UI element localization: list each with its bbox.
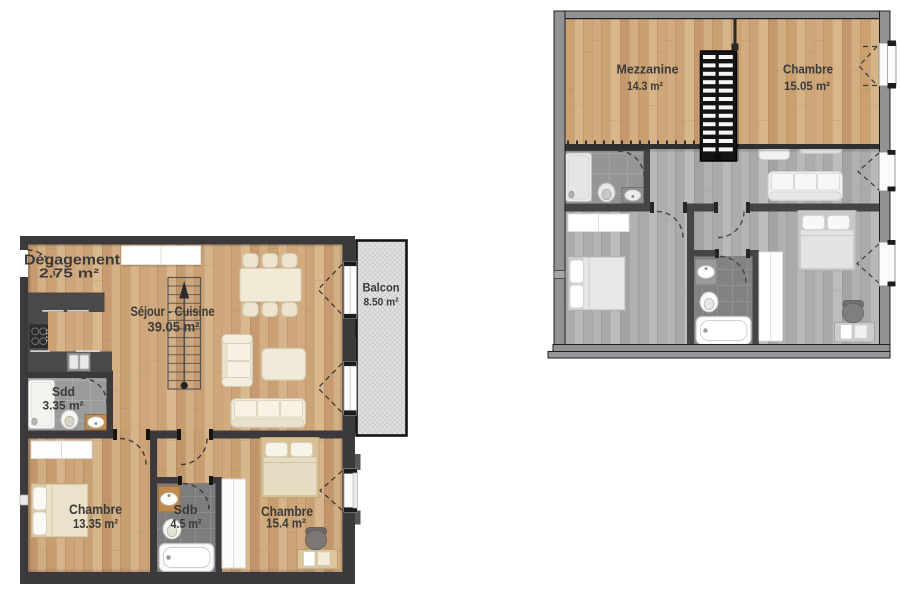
- svg-text:8.50 m²: 8.50 m²: [364, 297, 399, 309]
- svg-text:13.35 m²: 13.35 m²: [73, 517, 118, 531]
- svg-text:15.4 m²: 15.4 m²: [266, 517, 306, 531]
- svg-text:39.05 m²: 39.05 m²: [148, 320, 200, 335]
- svg-text:Chambre: Chambre: [783, 62, 833, 77]
- svg-text:15.05 m²: 15.05 m²: [784, 79, 830, 93]
- svg-text:Sdb: Sdb: [174, 503, 198, 517]
- svg-text:Sdd: Sdd: [52, 385, 75, 399]
- svg-text:2.75 m²: 2.75 m²: [39, 266, 100, 281]
- svg-text:Mezzanine: Mezzanine: [617, 62, 679, 77]
- svg-text:14.3 m²: 14.3 m²: [627, 79, 663, 93]
- svg-text:Balcon: Balcon: [363, 283, 400, 295]
- svg-text:Séjour - Cuisine: Séjour - Cuisine: [131, 303, 215, 319]
- svg-text:3.35 m²: 3.35 m²: [43, 399, 84, 413]
- svg-text:Chambre: Chambre: [69, 502, 122, 517]
- svg-text:4.5 m²: 4.5 m²: [171, 517, 202, 531]
